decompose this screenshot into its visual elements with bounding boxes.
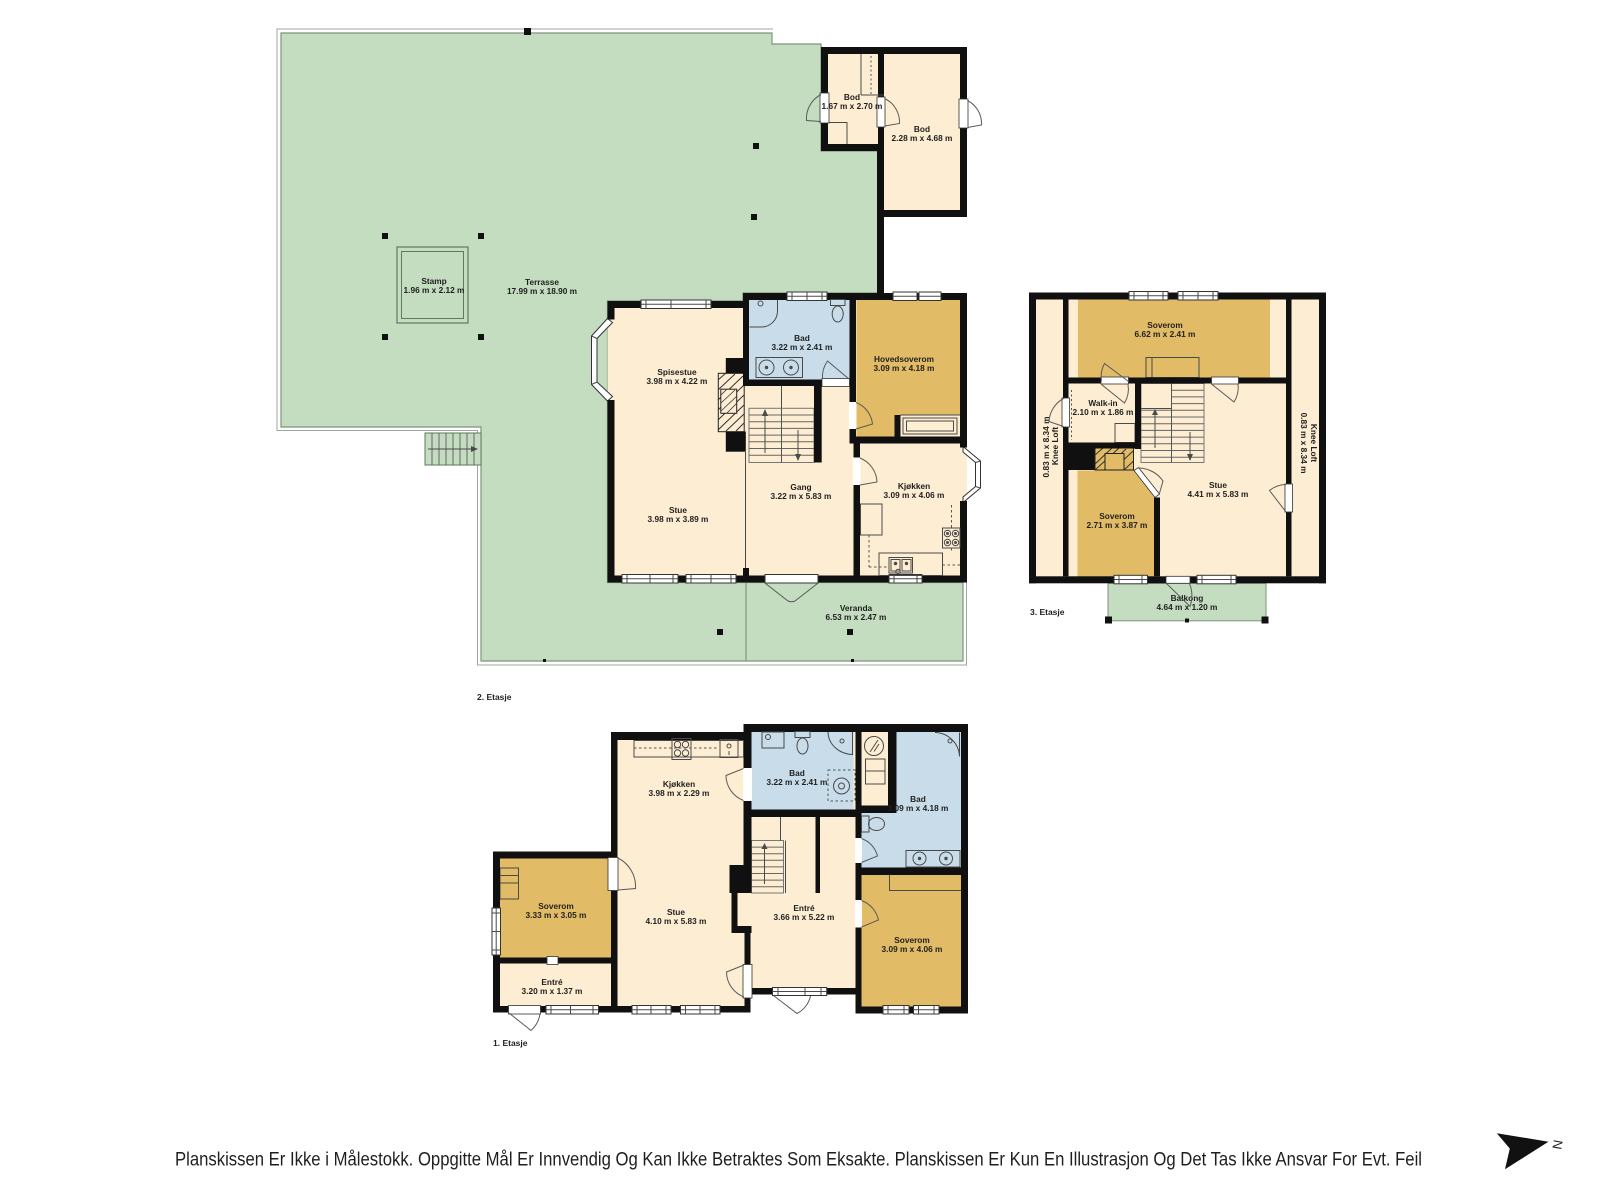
- svg-text:0.83 m x 8.34 m: 0.83 m x 8.34 m: [1299, 413, 1309, 474]
- svg-text:3.22 m x 2.41 m: 3.22 m x 2.41 m: [772, 342, 833, 352]
- svg-text:2.28 m x 4.68 m: 2.28 m x 4.68 m: [892, 133, 953, 143]
- svg-text:17.99 m x 18.90 m: 17.99 m x 18.90 m: [507, 286, 577, 296]
- svg-text:3.98 m x 4.22 m: 3.98 m x 4.22 m: [647, 376, 708, 386]
- svg-text:3.09 m x 4.18 m: 3.09 m x 4.18 m: [888, 803, 949, 813]
- svg-text:Planskissen Er Ikke i Målestok: Planskissen Er Ikke i Målestokk. Oppgitt…: [175, 1150, 1422, 1171]
- svg-text:1. Etasje: 1. Etasje: [493, 1038, 528, 1048]
- svg-text:3.09 m x 4.06 m: 3.09 m x 4.06 m: [884, 490, 945, 500]
- svg-text:4.10 m x 5.83 m: 4.10 m x 5.83 m: [646, 916, 707, 926]
- svg-text:3.09 m x 4.06 m: 3.09 m x 4.06 m: [882, 944, 943, 954]
- svg-text:3.22 m x 5.83 m: 3.22 m x 5.83 m: [771, 491, 832, 501]
- svg-text:3. Etasje: 3. Etasje: [1030, 607, 1065, 617]
- svg-text:3.09 m x 4.18 m: 3.09 m x 4.18 m: [874, 363, 935, 373]
- svg-text:1.96 m x 2.12 m: 1.96 m x 2.12 m: [404, 285, 465, 295]
- svg-text:3.98 m x 3.89 m: 3.98 m x 3.89 m: [648, 514, 709, 524]
- svg-text:3.66 m x 5.22 m: 3.66 m x 5.22 m: [774, 912, 835, 922]
- svg-text:2.71 m x 3.87 m: 2.71 m x 3.87 m: [1087, 520, 1148, 530]
- svg-text:3.22 m x 2.41 m: 3.22 m x 2.41 m: [767, 777, 828, 787]
- svg-text:3.98 m x 2.29 m: 3.98 m x 2.29 m: [649, 788, 710, 798]
- svg-text:1.67 m x 2.70 m: 1.67 m x 2.70 m: [822, 101, 883, 111]
- svg-text:3.20 m x 1.37 m: 3.20 m x 1.37 m: [522, 986, 583, 996]
- svg-text:3.33 m x 3.05 m: 3.33 m x 3.05 m: [526, 910, 587, 920]
- svg-text:Knee Loft: Knee Loft: [1050, 427, 1060, 465]
- svg-text:2. Etasje: 2. Etasje: [477, 692, 512, 702]
- svg-text:6.62 m x 2.41 m: 6.62 m x 2.41 m: [1135, 329, 1196, 339]
- svg-text:Knee Loft: Knee Loft: [1309, 424, 1319, 462]
- svg-text:4.41 m x 5.83 m: 4.41 m x 5.83 m: [1188, 489, 1249, 499]
- svg-text:2.10 m x 1.86 m: 2.10 m x 1.86 m: [1073, 407, 1134, 417]
- svg-text:6.53 m x 2.47 m: 6.53 m x 2.47 m: [826, 612, 887, 622]
